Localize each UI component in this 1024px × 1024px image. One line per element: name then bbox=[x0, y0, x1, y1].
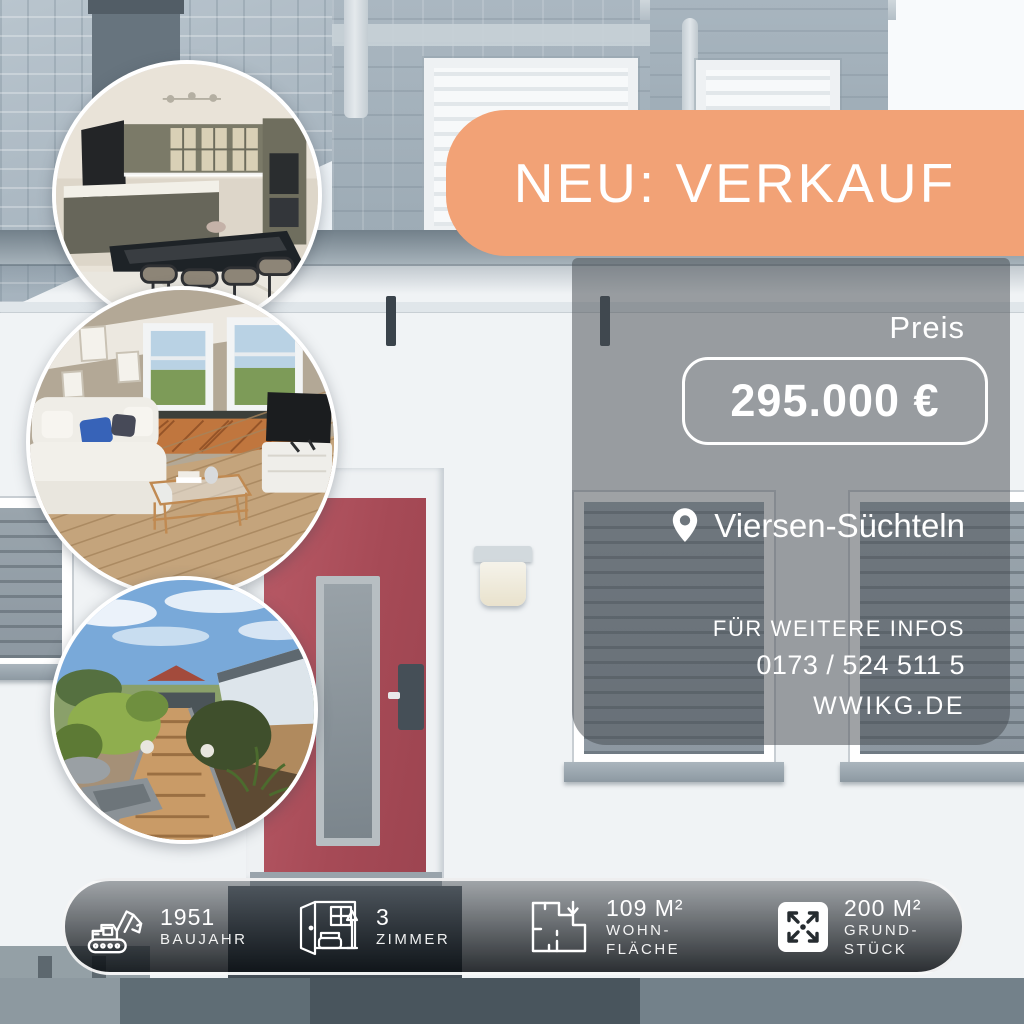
info-title: FÜR WEITERE INFOS bbox=[713, 616, 965, 642]
price-value: 295.000 € bbox=[730, 375, 939, 427]
window-right-1-sill bbox=[564, 762, 784, 782]
stat-value: 1951 bbox=[160, 903, 248, 931]
stats-bar: 1951 BAUJAHR 3 ZIMMER bbox=[62, 878, 965, 975]
real-estate-flyer: NEU: VERKAUF Preis 295.000 € Viersen-Süc… bbox=[0, 0, 1024, 1024]
wall-lamp bbox=[474, 546, 532, 562]
stat-label: BAUJAHR bbox=[160, 931, 248, 949]
stat-value: 3 bbox=[376, 903, 450, 931]
dormer-center-gutter bbox=[332, 24, 666, 46]
stat-value: 109 M² bbox=[606, 894, 684, 922]
stat-grundstueck: 200 M² GRUND- STÜCK bbox=[777, 881, 922, 972]
garden-photo-circle bbox=[50, 576, 318, 844]
price-value-box: 295.000 € bbox=[682, 357, 988, 445]
banner-label: NEU: VERKAUF bbox=[514, 151, 956, 215]
expand-arrows-icon bbox=[777, 901, 829, 953]
website: WWIKG.DE bbox=[813, 692, 965, 721]
door-glass-panel bbox=[324, 584, 372, 838]
wall-bracket bbox=[386, 296, 396, 346]
room-icon bbox=[295, 896, 361, 958]
house-plinth bbox=[0, 978, 1024, 1024]
stat-value: 200 M² bbox=[844, 894, 922, 922]
location-text: Viersen-Süchteln bbox=[714, 507, 965, 545]
new-sale-banner: NEU: VERKAUF bbox=[446, 110, 1024, 256]
stat-wohnflaeche: 109 M² WOHN- FLÄCHE bbox=[529, 881, 684, 972]
stat-zimmer: 3 ZIMMER bbox=[295, 881, 450, 972]
price-panel: Preis 295.000 € Viersen-Süchteln FÜR WEI… bbox=[572, 258, 1010, 745]
location-pin-icon bbox=[670, 506, 700, 546]
floorplan-icon bbox=[529, 899, 591, 955]
living-room-photo bbox=[30, 290, 334, 594]
door-key bbox=[388, 692, 400, 699]
stat-label: WOHN- bbox=[606, 922, 684, 940]
stat-baujahr: 1951 BAUJAHR bbox=[85, 881, 248, 972]
price-heading: Preis bbox=[889, 310, 965, 346]
wall-lamp-shade bbox=[480, 562, 526, 606]
living-room-photo-circle bbox=[26, 286, 338, 598]
door-lock bbox=[398, 664, 424, 730]
downpipe bbox=[344, 0, 368, 118]
excavator-icon bbox=[85, 898, 145, 956]
stat-label: FLÄCHE bbox=[606, 941, 684, 959]
stat-label: GRUND- bbox=[844, 922, 922, 940]
stat-label: ZIMMER bbox=[376, 931, 450, 949]
stat-label: STÜCK bbox=[844, 941, 922, 959]
garden-photo bbox=[54, 580, 314, 840]
phone-number: 0173 / 524 511 5 bbox=[756, 650, 965, 681]
window-right-2-sill bbox=[840, 762, 1024, 782]
location-row: Viersen-Süchteln bbox=[572, 504, 1010, 548]
